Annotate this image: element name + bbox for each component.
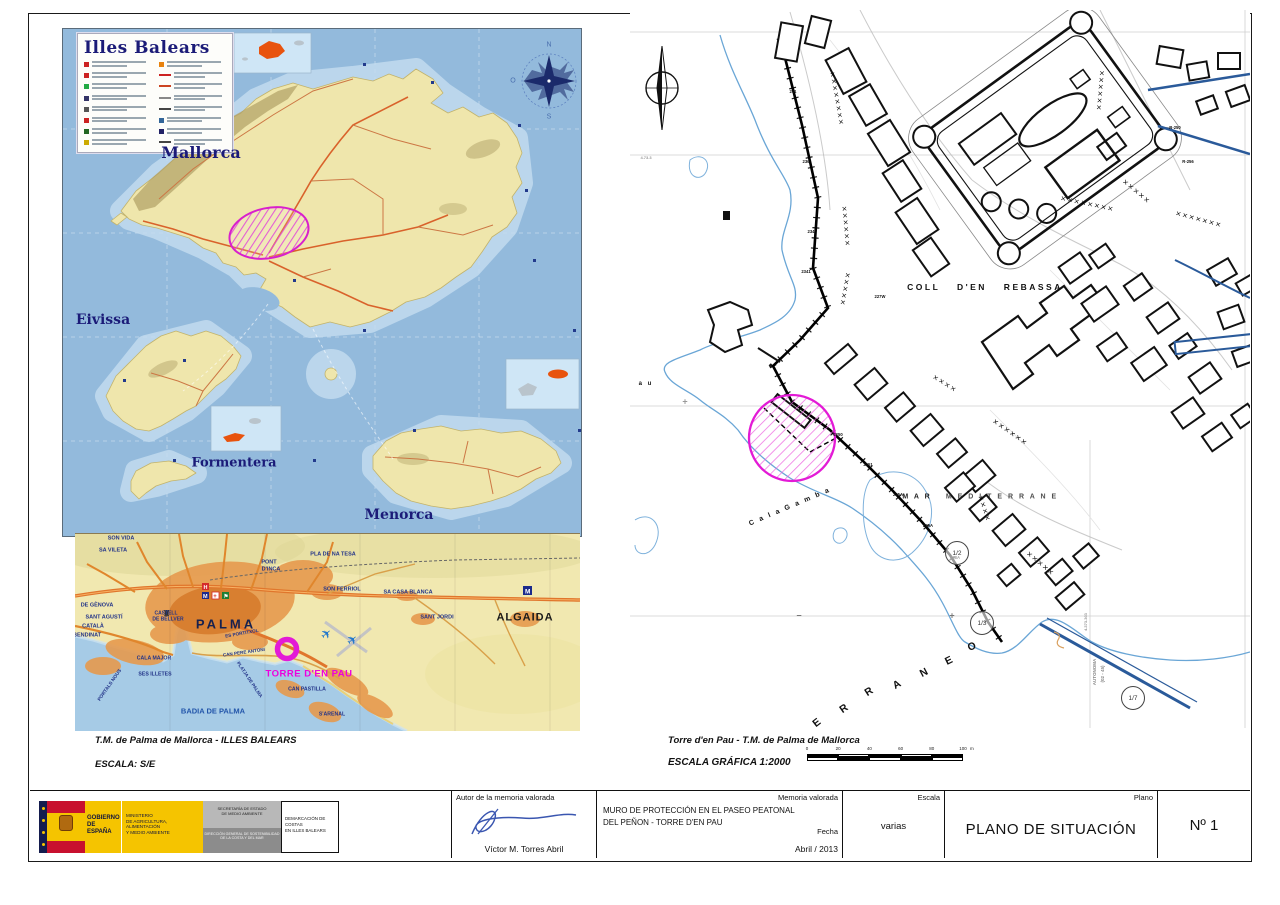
coordinate-label: 4.73.3	[640, 156, 651, 160]
legend-marker	[84, 107, 89, 112]
svg-text:××××××: ××××××	[1094, 70, 1106, 112]
spain-flag	[47, 801, 85, 853]
legend-marker	[84, 96, 89, 101]
legend-marker	[159, 108, 171, 110]
place-label: D'INCA	[262, 567, 281, 573]
legend-marker	[159, 85, 171, 87]
date-label: Fecha	[817, 827, 838, 836]
survey-tag: 2251	[863, 463, 872, 467]
signature	[464, 804, 584, 838]
scale-tick-label: 100	[959, 746, 967, 751]
legend-entry	[159, 72, 226, 79]
legend-text-illegible	[174, 83, 226, 90]
legend-text-illegible	[92, 117, 151, 124]
place-label: SON VIDA	[108, 536, 135, 542]
gobierno-text: GOBIERNO DE ESPAÑA	[85, 801, 121, 853]
scale-segment	[838, 757, 869, 761]
legend-marker	[84, 62, 89, 67]
work-site-marker	[749, 395, 835, 481]
grid-tick-mark: −	[796, 612, 801, 621]
place-label: SA CASA BLANCA	[383, 590, 432, 596]
place-label: DE GÈNOVA	[81, 603, 114, 609]
legend-title: Illes Balears	[84, 38, 226, 58]
north-arrow	[646, 46, 678, 130]
place-label: CALA MAJOR	[137, 656, 171, 661]
legend-entry	[84, 117, 151, 124]
legend-entry	[84, 106, 151, 113]
legend-text-illegible	[92, 95, 151, 102]
island-name: Menorca	[365, 508, 434, 522]
place-label: S'ARENAL	[319, 712, 345, 717]
svg-text:××××××: ××××××	[840, 205, 852, 247]
svg-text:+: +	[213, 594, 217, 600]
legend-marker	[84, 129, 89, 134]
sheet-number-cell: Nº 1	[1157, 791, 1250, 858]
svg-text:H: H	[204, 585, 208, 591]
legend-marker	[84, 84, 89, 89]
islands-overview-map: Illes Balears MallorcaEivissaFormenteraM…	[62, 28, 582, 537]
place-label: CATALÀ	[82, 624, 104, 630]
svg-text:××××: ××××	[931, 373, 959, 394]
coordinate-label: 4.373.303	[1084, 613, 1088, 631]
survey-tag: 227W	[875, 295, 886, 299]
legend-entry	[159, 117, 226, 124]
survey-tag: 225A	[893, 493, 903, 497]
author-label: Autor de la memoria valorada	[456, 793, 554, 802]
svg-text:×××××: ×××××	[1121, 177, 1152, 205]
scale-tick-label: 80	[929, 746, 934, 751]
svg-text:××××××××: ××××××××	[1060, 194, 1115, 213]
compass-rose	[522, 54, 576, 108]
legend-marker	[84, 118, 89, 123]
survey-tag: 241	[790, 90, 797, 94]
legend-text-illegible	[92, 83, 151, 90]
legend-marker	[159, 62, 164, 67]
sheet-reference-circle: 1/3	[970, 611, 994, 635]
gobierno-logo-strip: GOBIERNO DE ESPAÑA MINISTERIO DE AGRICUL…	[39, 801, 339, 853]
svg-text:××××××: ××××××	[991, 417, 1029, 447]
coordinate-label: AUTONOMA	[1093, 659, 1098, 685]
legend-text-illegible	[92, 128, 151, 135]
right-map-scale: ESCALA GRÁFICA 1:2000	[668, 757, 791, 768]
place-label: DE BELLVER	[152, 618, 183, 623]
place-label: SON FERRIOL	[323, 587, 361, 593]
beach-mark	[1054, 632, 1064, 648]
place-label: SANT AGUSTÍ	[85, 615, 122, 621]
survey-tag: 2341	[801, 270, 810, 274]
compass-letter: S	[547, 114, 552, 121]
place-label: BADIA DE PALMA	[181, 707, 245, 715]
palma-map-drawing: ✈ ✈ H M + ⚑ M ♜	[75, 534, 580, 731]
plan-label: COLL D'EN REBASSA	[907, 283, 1063, 292]
sheet-reference-circle: 1/2	[945, 541, 969, 565]
palma-inset-map: ✈ ✈ H M + ⚑ M ♜ SON VIDASA VILETAPONTD'I…	[75, 533, 580, 731]
plan-label: M E D I T E R R A N E	[946, 494, 1058, 501]
legend-entry	[84, 72, 151, 79]
svg-text:⚑: ⚑	[224, 593, 229, 600]
legend-text-illegible	[92, 72, 151, 79]
scale-segment	[901, 757, 932, 761]
place-label: SANT JORDI	[420, 615, 453, 621]
memoria-label: Memoria valorada	[778, 793, 838, 802]
ministerio-text: MINISTERIO DE AGRICULTURA, ALIMENTACIÓN …	[121, 801, 203, 853]
place-label: TORRE D'EN PAU	[265, 669, 352, 679]
gobierno-line: GOBIERNO	[87, 815, 119, 822]
legend-text-illegible	[92, 139, 151, 146]
logo-cell: GOBIERNO DE ESPAÑA MINISTERIO DE AGRICUL…	[30, 791, 451, 858]
demarcacion-text: DEMARCACIÓN DE COSTAS EN ILLES BALEARS	[281, 801, 339, 853]
legend-entry	[84, 61, 151, 68]
date-value: Abril / 2013	[795, 844, 838, 854]
compass-letter: N	[546, 42, 551, 49]
survey-tag: 226A	[923, 524, 933, 528]
compass-letter: O	[510, 78, 515, 85]
legend-entries	[84, 61, 226, 151]
place-label: PLA DE NA TESA	[310, 552, 355, 558]
legend-entry	[159, 95, 226, 102]
left-map-scale: ESCALA: S/E	[95, 759, 155, 770]
legend-entry	[84, 83, 151, 90]
site-plan-drawing: ×××××××× ×××××× ××××× ×××××××× ××××× ×××…	[630, 10, 1250, 728]
scale-segment	[932, 757, 963, 761]
survey-tag: R-256	[1182, 160, 1193, 164]
scale-label: Escala	[917, 793, 940, 802]
place-label: BENDINAT	[75, 633, 101, 639]
secretaria-text: SECRETARÍA DE ESTADO DE MEDIO AMBIENTE D…	[203, 801, 281, 853]
svg-text:×××××: ×××××	[838, 272, 852, 307]
memoria-cell: Memoria valorada MURO DE PROTECCIÓN EN E…	[596, 791, 842, 858]
scale-tick-label: 0	[806, 746, 809, 751]
scale-cell: Escala varias	[842, 791, 944, 858]
island-name: Eivissa	[76, 313, 130, 327]
scale-tick-label: 60	[898, 746, 903, 751]
plan-label: M A R	[902, 494, 931, 501]
gobierno-line: DE ESPAÑA	[87, 822, 119, 836]
place-label: PONT	[261, 560, 276, 566]
legend-entry	[159, 61, 226, 68]
islet-cabrera	[325, 368, 337, 380]
scale-tick-label: 40	[867, 746, 872, 751]
place-label: SA VILETA	[99, 548, 127, 554]
legend-entry	[159, 83, 226, 90]
survey-tag: 236	[803, 160, 810, 164]
plano-label: Plano	[1134, 793, 1153, 802]
author-name: Víctor M. Torres Abril	[452, 844, 596, 854]
legend-text-illegible	[174, 72, 226, 79]
place-label: ALGAIDA	[496, 613, 553, 624]
piers	[1040, 74, 1250, 708]
legend-text-illegible	[167, 128, 226, 135]
legend-entry	[159, 106, 226, 113]
project-title: MURO DE PROTECCIÓN EN EL PASEO PEATONAL …	[603, 805, 795, 829]
plan-sheet: Illes Balears MallorcaEivissaFormenteraM…	[0, 0, 1280, 905]
graphic-scale-bar: 020406080100m	[807, 746, 987, 766]
legend-text-illegible	[167, 117, 226, 124]
survey-tag: 234	[808, 230, 815, 234]
legend-marker	[84, 73, 89, 78]
scale-segment	[869, 757, 900, 761]
legend-marker	[84, 140, 89, 145]
legend-entry	[84, 139, 151, 146]
legend-marker	[159, 129, 164, 134]
place-label: CAN PASTILLA	[288, 687, 326, 692]
legend-text-illegible	[167, 61, 226, 68]
scale-unit: m	[970, 746, 974, 751]
author-cell: Autor de la memoria valorada Víctor M. T…	[451, 791, 596, 858]
grid-tick-mark: +	[682, 398, 687, 407]
sheet-number: Nº 1	[1158, 817, 1250, 834]
right-map-caption: Torre d'en Pau - T.M. de Palma de Mallor…	[668, 735, 860, 746]
legend-entry	[159, 128, 226, 135]
scale-value: varias	[843, 821, 944, 832]
grid-tick-mark: +	[949, 612, 954, 621]
title-block: GOBIERNO DE ESPAÑA MINISTERIO DE AGRICUL…	[30, 790, 1250, 858]
legend-entry	[84, 95, 151, 102]
legend-text-illegible	[174, 95, 226, 102]
svg-text:M: M	[203, 594, 208, 600]
island-name: Mallorca	[161, 145, 240, 161]
scale-tick-label: 20	[836, 746, 841, 751]
plano-title: PLANO DE SITUACIÓN	[945, 821, 1157, 838]
map-legend: Illes Balears	[77, 33, 233, 153]
left-map-caption: T.M. de Palma de Mallorca - ILLES BALEAR…	[95, 735, 296, 746]
legend-text-illegible	[174, 106, 226, 113]
island-name: Formentera	[191, 457, 276, 470]
place-label: SES ILLETES	[138, 672, 171, 677]
site-plan-map: ×××××××× ×××××× ××××× ×××××××× ××××× ×××…	[630, 10, 1250, 728]
plano-cell: Plano PLANO DE SITUACIÓN	[944, 791, 1157, 858]
plan-label: a u	[639, 381, 654, 387]
legend-text-illegible	[92, 106, 151, 113]
eu-bar	[39, 801, 47, 853]
legend-marker	[159, 118, 164, 123]
place-label: PALMA	[196, 618, 256, 631]
buildings	[775, 16, 1250, 610]
legend-text-illegible	[92, 61, 151, 68]
legend-marker	[159, 74, 171, 76]
legend-entry	[84, 128, 151, 135]
svg-text:×××××××: ×××××××	[1174, 209, 1222, 229]
coordinate-label: (02 - 45)	[1101, 665, 1106, 682]
svg-text:M: M	[525, 589, 530, 596]
sheet-reference-circle: 1/7	[1121, 686, 1145, 710]
legend-marker	[159, 97, 171, 99]
scale-segment	[807, 757, 838, 761]
survey-tag: R-250	[1169, 126, 1180, 130]
survey-tag: 2250	[833, 433, 842, 437]
